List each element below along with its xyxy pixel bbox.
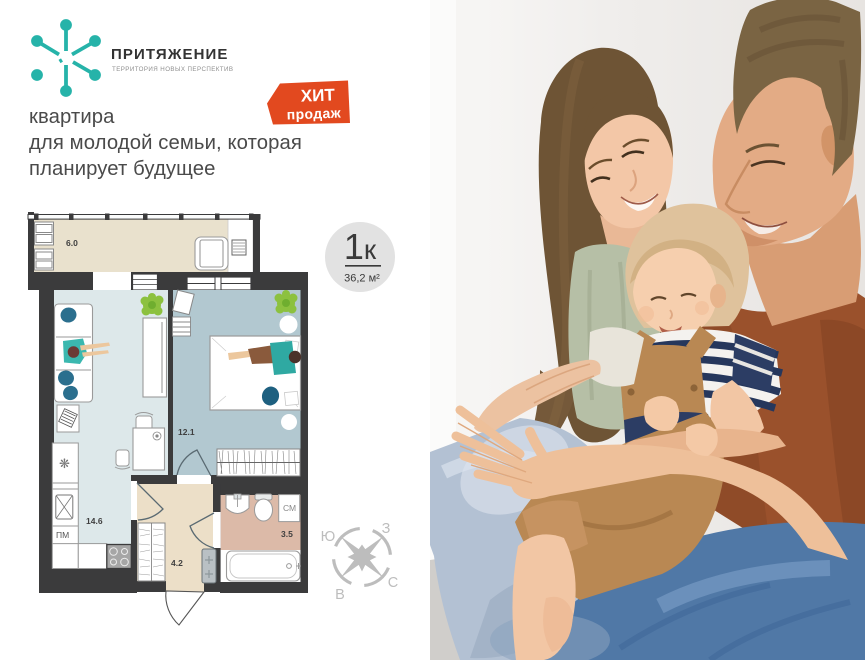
svg-text:12.1: 12.1 (178, 427, 195, 437)
svg-text:36,2 м²: 36,2 м² (344, 273, 380, 285)
svg-text:С: С (388, 575, 398, 591)
svg-text:Ю: Ю (321, 529, 336, 545)
svg-text:З: З (382, 521, 391, 537)
svg-text:ПМ: ПМ (56, 530, 69, 540)
svg-text:СМ: СМ (283, 503, 296, 513)
svg-text:14.6: 14.6 (86, 516, 103, 526)
svg-text:4.2: 4.2 (171, 558, 183, 568)
svg-text:3.5: 3.5 (281, 529, 293, 539)
svg-text:6.0: 6.0 (66, 238, 78, 248)
svg-text:ХИТ: ХИТ (301, 85, 336, 105)
svg-text:❋: ❋ (59, 456, 70, 471)
svg-text:В: В (335, 587, 345, 603)
